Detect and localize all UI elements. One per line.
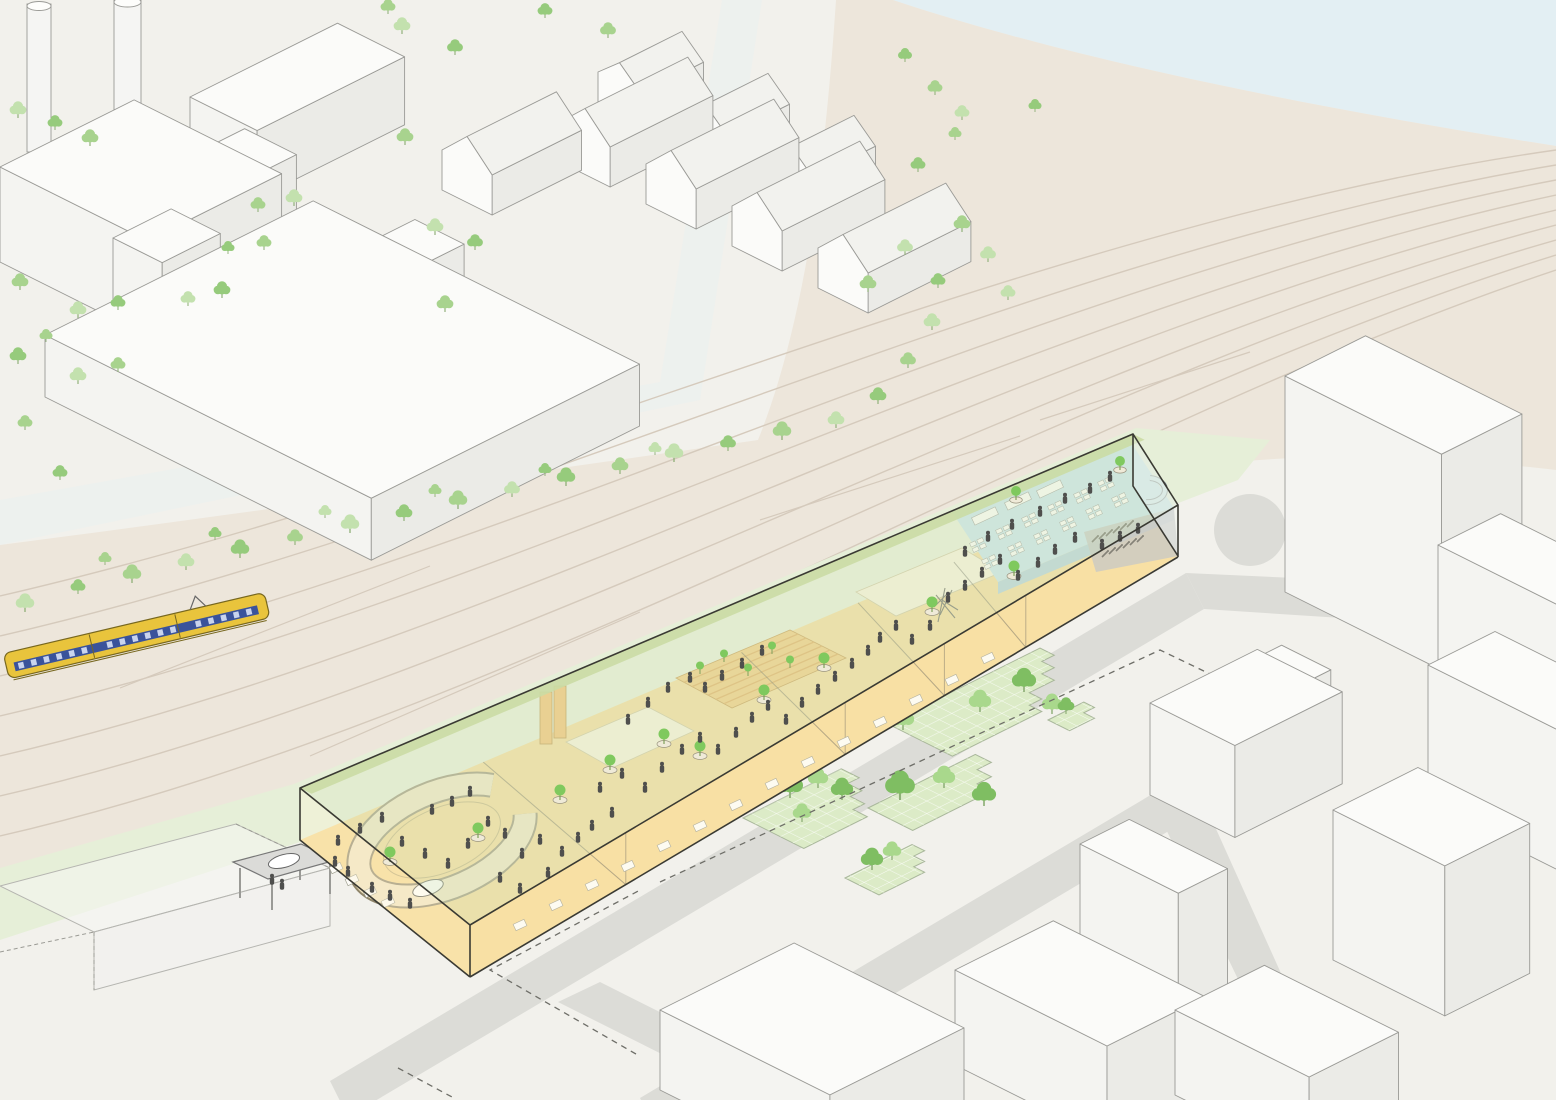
person-figure bbox=[503, 828, 507, 839]
turning-loop bbox=[1214, 494, 1286, 566]
person-figure bbox=[688, 672, 692, 683]
person-figure bbox=[430, 804, 434, 815]
person-figure bbox=[280, 879, 284, 890]
person-figure bbox=[486, 816, 490, 827]
person-figure bbox=[1016, 570, 1020, 581]
person-figure bbox=[498, 872, 502, 883]
chimney bbox=[27, 4, 51, 152]
person-figure bbox=[620, 768, 624, 779]
person-figure bbox=[336, 835, 340, 846]
person-figure bbox=[698, 732, 702, 743]
person-figure bbox=[946, 592, 950, 603]
person-figure bbox=[850, 658, 854, 669]
person-figure bbox=[270, 874, 274, 885]
person-figure bbox=[910, 634, 914, 645]
person-figure bbox=[590, 820, 594, 831]
chimney-top bbox=[114, 0, 141, 7]
person-figure bbox=[986, 531, 990, 542]
person-figure bbox=[450, 796, 454, 807]
axonometric-svg bbox=[0, 0, 1556, 1100]
person-figure bbox=[660, 762, 664, 773]
person-figure bbox=[333, 856, 337, 867]
person-figure bbox=[980, 567, 984, 578]
person-figure bbox=[626, 714, 630, 725]
person-figure bbox=[1100, 539, 1104, 550]
person-figure bbox=[866, 645, 870, 656]
person-figure bbox=[466, 838, 470, 849]
person-figure bbox=[760, 645, 764, 656]
person-figure bbox=[423, 848, 427, 859]
person-figure bbox=[1088, 483, 1092, 494]
person-figure bbox=[576, 832, 580, 843]
person-figure bbox=[408, 898, 412, 909]
person-figure bbox=[680, 744, 684, 755]
person-figure bbox=[520, 848, 524, 859]
person-figure bbox=[646, 697, 650, 708]
person-figure bbox=[963, 580, 967, 591]
person-figure bbox=[800, 697, 804, 708]
person-figure bbox=[740, 658, 744, 669]
person-figure bbox=[720, 670, 724, 681]
person-figure bbox=[716, 744, 720, 755]
person-figure bbox=[833, 671, 837, 682]
person-figure bbox=[734, 727, 738, 738]
person-figure bbox=[380, 812, 384, 823]
person-figure bbox=[750, 712, 754, 723]
person-figure bbox=[766, 700, 770, 711]
person-figure bbox=[963, 546, 967, 557]
person-figure bbox=[816, 684, 820, 695]
person-figure bbox=[1053, 544, 1057, 555]
person-figure bbox=[894, 620, 898, 631]
person-figure bbox=[546, 867, 550, 878]
person-figure bbox=[1063, 493, 1067, 504]
chimney-top bbox=[27, 2, 51, 11]
person-figure bbox=[468, 786, 472, 797]
person-figure bbox=[1038, 506, 1042, 517]
person-figure bbox=[703, 682, 707, 693]
person-figure bbox=[1108, 471, 1112, 482]
person-figure bbox=[643, 782, 647, 793]
person-figure bbox=[878, 632, 882, 643]
person-figure bbox=[928, 620, 932, 631]
person-figure bbox=[1073, 532, 1077, 543]
person-figure bbox=[666, 682, 670, 693]
site-axonometric-illustration bbox=[0, 0, 1556, 1100]
person-figure bbox=[998, 554, 1002, 565]
person-figure bbox=[538, 834, 542, 845]
person-figure bbox=[1036, 557, 1040, 568]
person-figure bbox=[446, 858, 450, 869]
person-figure bbox=[346, 866, 350, 877]
person-figure bbox=[358, 823, 362, 834]
person-figure bbox=[388, 890, 392, 901]
person-figure bbox=[400, 836, 404, 847]
person-figure bbox=[610, 807, 614, 818]
person-figure bbox=[370, 882, 374, 893]
person-figure bbox=[560, 846, 564, 857]
person-figure bbox=[518, 883, 522, 894]
person-figure bbox=[784, 714, 788, 725]
person-figure bbox=[598, 782, 602, 793]
person-figure bbox=[1010, 519, 1014, 530]
